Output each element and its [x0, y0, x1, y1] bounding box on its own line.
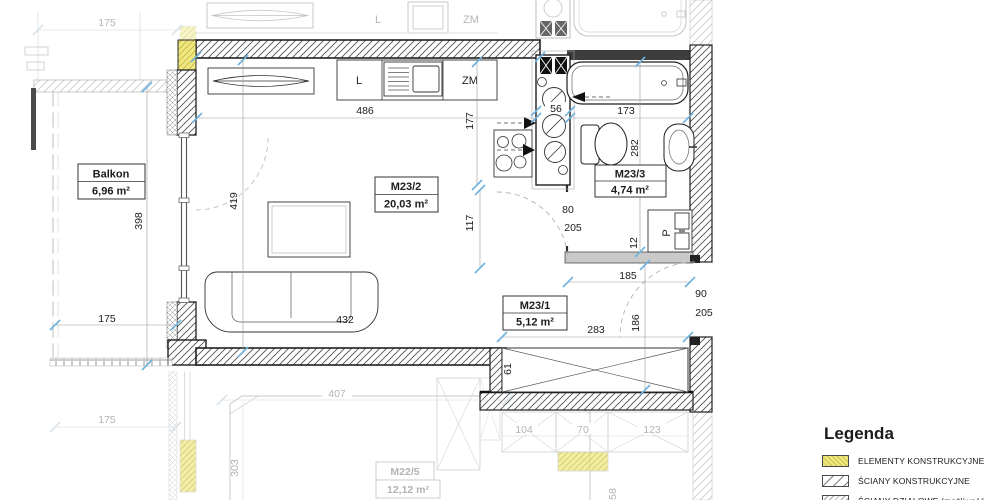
dim-12: 12 [628, 237, 640, 249]
room-hall-name: M23/1 [520, 300, 551, 312]
dim-185: 185 [619, 270, 637, 282]
dim-177: 177 [464, 112, 476, 130]
dim-282: 282 [629, 139, 641, 157]
partition-niche-wall [565, 252, 693, 263]
bottom-wall-living [196, 348, 506, 365]
room-label-neighbor: M22/5 12,12 m² [376, 462, 440, 498]
dim-398: 398 [133, 212, 145, 230]
legend-title: Legenda [824, 424, 1000, 444]
dim-486: 486 [356, 105, 374, 117]
dim-90: 90 [695, 288, 707, 300]
dim-56: 56 [550, 103, 562, 115]
room-bath-area: 4,74 m² [611, 185, 649, 197]
hall-wardrobe [502, 348, 688, 392]
room-label-balcony: Balkon 6,96 m² [78, 164, 145, 199]
dim-70: 70 [577, 424, 589, 436]
dim-123: 123 [643, 424, 661, 436]
hall-pier [490, 348, 502, 392]
dim-175-top: 175 [98, 17, 116, 29]
room-neighbor-area: 12,12 m² [387, 484, 430, 496]
bottom-wall-hall [480, 392, 693, 410]
cooktop [494, 117, 536, 177]
dim-58: 58 [607, 488, 619, 500]
legend-item-loadbearing: ŚCIANY KONSTRUKCYJNE [822, 475, 1000, 487]
dim-61: 61 [502, 363, 514, 375]
dim-205-bath: 205 [564, 222, 582, 234]
dim-80: 80 [562, 204, 574, 216]
dim-205-entry: 205 [695, 307, 713, 319]
dim-117: 117 [464, 214, 476, 231]
room-balcony-name: Balkon [93, 169, 130, 181]
toilet [581, 123, 627, 165]
legend-swatch-loadbearing-walls [822, 475, 849, 487]
structural-column-yellow [178, 40, 196, 70]
floor-plan-page: L ZM [0, 0, 1000, 500]
table [268, 202, 350, 257]
room-hall-area: 5,12 m² [516, 317, 554, 329]
washbasin [664, 124, 697, 171]
legend: Legenda ELEMENTY KONSTRUKCYJNE ŚCIANY KO… [822, 424, 1000, 500]
balcony-railing [50, 358, 172, 366]
room-bath-name: M23/3 [615, 169, 646, 181]
dim-186: 186 [630, 314, 642, 332]
legend-label: ELEMENTY KONSTRUKCYJNE [858, 456, 984, 466]
bathtub [567, 62, 688, 104]
legend-item-partition: ŚCIANY DZIAŁOWE (możliwość [822, 495, 1000, 500]
dim-173: 173 [617, 105, 635, 117]
balcony-window [179, 133, 189, 303]
neighbor-fridge-label: L [375, 14, 381, 26]
room-label-bath: M23/3 4,74 m² [595, 165, 666, 197]
left-wall-pier-top [177, 70, 196, 135]
dim-432: 432 [336, 314, 354, 326]
room-living-name: M23/2 [391, 181, 422, 193]
room-label-living: M23/2 20,03 m² [375, 177, 438, 212]
dim-175-balcony: 175 [98, 313, 116, 325]
washer-label: P [661, 229, 673, 236]
legend-item-structural: ELEMENTY KONSTRUKCYJNE [822, 455, 1000, 467]
insulation-top [167, 70, 177, 135]
dim-419: 419 [228, 192, 240, 210]
bathroom-top-wall [567, 50, 690, 60]
neighbor-dishwasher-label: ZM [463, 14, 479, 26]
room-living-area: 20,03 m² [384, 199, 428, 211]
room-balcony-area: 6,96 m² [92, 186, 130, 198]
radiator [208, 68, 314, 94]
room-labels: M23/2 20,03 m² M23/3 4,74 m² M23/1 5,12 … [78, 164, 666, 498]
washing-machine: P [648, 210, 692, 252]
dim-175-bottom: 175 [98, 414, 116, 426]
legend-label: ŚCIANY DZIAŁOWE (możliwość [858, 496, 985, 500]
fridge-label: L [356, 75, 362, 87]
legend-swatch-partition-walls [822, 495, 849, 500]
dim-407: 407 [328, 388, 346, 400]
entry-jamb-bottom [690, 337, 700, 345]
dim-303: 303 [229, 459, 241, 477]
dim-283: 283 [587, 324, 605, 336]
neighbor-top: L ZM [180, 0, 712, 46]
kitchen-sink [384, 62, 442, 96]
room-label-hall: M23/1 5,12 m² [503, 296, 567, 330]
bathroom-door-swing [497, 192, 568, 263]
room-neighbor-name: M22/5 [390, 466, 419, 478]
legend-label: ŚCIANY KONSTRUKCYJNE [858, 476, 970, 486]
dishwasher-label: ZM [462, 75, 478, 87]
dim-104: 104 [515, 424, 533, 436]
legend-swatch-structural-elements [822, 455, 849, 467]
